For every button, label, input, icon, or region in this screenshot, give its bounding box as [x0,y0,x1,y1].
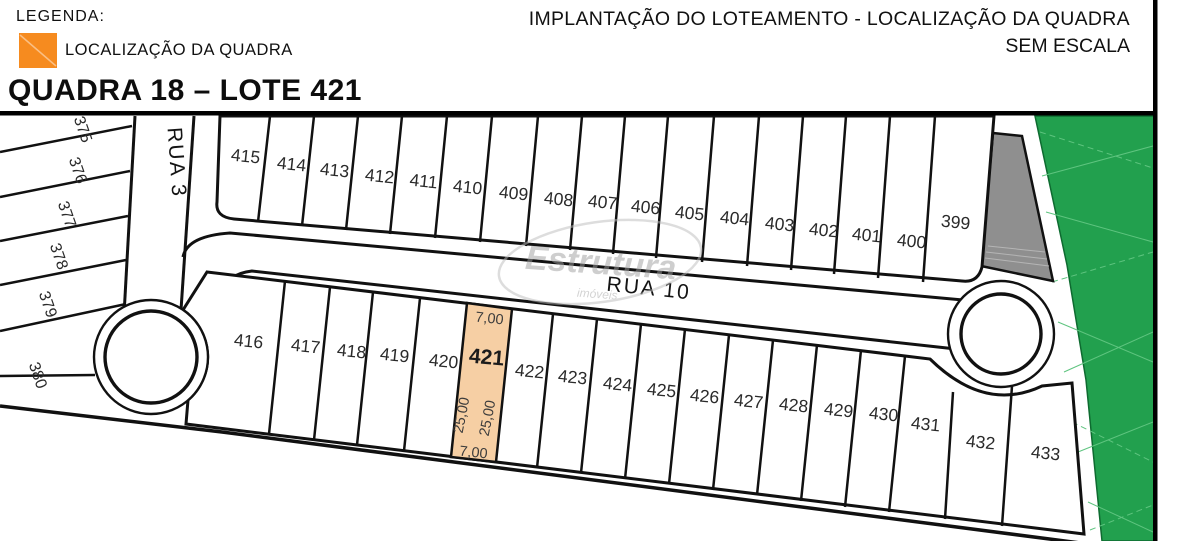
lot-number-376: 376 [65,155,90,186]
lot-number-406: 406 [630,196,661,219]
plan-title: IMPLANTAÇÃO DO LOTEAMENTO - LOCALIZAÇÃO … [529,8,1130,58]
lot-number-413: 413 [319,159,350,182]
lot-number-400: 400 [896,230,927,253]
lot-number-427: 427 [733,390,764,413]
lot-number-408: 408 [543,188,574,211]
lot-421-top-width: 7,00 [475,310,505,329]
lot-number-416: 416 [233,330,264,353]
lot-number-412: 412 [364,165,395,188]
lot-number-409: 409 [498,182,529,205]
lot-number-404: 404 [719,207,750,230]
lot-number-429: 429 [823,399,854,422]
plan-title-line1: IMPLANTAÇÃO DO LOTEAMENTO - LOCALIZAÇÃO … [529,8,1130,31]
lot-number-375: 375 [70,114,95,145]
top-border-line [0,111,1157,116]
lot-number-415: 415 [230,145,261,168]
lot-number-433: 433 [1030,442,1061,465]
lot-number-420: 420 [428,350,459,373]
left-lot-labels: 375 376 377 378 379 380 [25,114,95,391]
lot-number-411: 411 [409,170,439,193]
lot-number-403: 403 [764,213,795,236]
lot-421-bottom-width: 7,00 [459,444,489,463]
lot-number-419: 419 [379,344,410,367]
lot-number-414: 414 [276,153,307,176]
lot-number-426: 426 [689,385,720,408]
plan-title-line2: SEM ESCALA [529,35,1130,58]
quadra-lote-subtitle: QUADRA 18 – LOTE 421 [8,74,362,108]
lot-number-405: 405 [674,202,705,225]
lot-number-377: 377 [54,199,79,230]
legend-swatch [18,32,58,69]
lot-number-407: 407 [587,191,618,214]
lot-number-423: 423 [557,366,588,389]
lot-number-432: 432 [965,431,996,454]
plan-sheet: LEGENDA: LOCALIZAÇÃO DA QUADRA IMPLANTAÇ… [0,0,1196,541]
rua3-culdesac-inner [105,311,197,403]
lot-number-379: 379 [35,289,60,320]
lot-number-417: 417 [290,335,321,358]
right-border-line [1153,0,1158,541]
lot-number-430: 430 [868,403,899,426]
lot-number-380: 380 [25,360,50,391]
watermark-subtext: imóveis [576,286,618,303]
rua10-culdesac-inner [961,294,1041,374]
lot-number-428: 428 [778,394,809,417]
legend-swatch-label: LOCALIZAÇÃO DA QUADRA [65,41,293,60]
lot-number-421: 421 [468,345,505,371]
lot-number-402: 402 [808,219,839,242]
middle-block [183,272,1084,534]
lot-number-431: 431 [910,413,941,436]
lot-number-418: 418 [336,340,367,363]
legend-row: LOCALIZAÇÃO DA QUADRA [18,32,293,69]
lot-number-424: 424 [602,373,633,396]
lot-number-410: 410 [452,176,483,199]
lot-number-399: 399 [940,211,971,234]
lot-number-401: 401 [851,224,882,247]
lot-number-422: 422 [514,360,545,383]
rua3-label: RUA 3 [163,126,191,198]
legend-title: LEGENDA: [16,8,105,26]
lot-number-378: 378 [46,241,71,272]
lot-number-425: 425 [646,379,677,402]
